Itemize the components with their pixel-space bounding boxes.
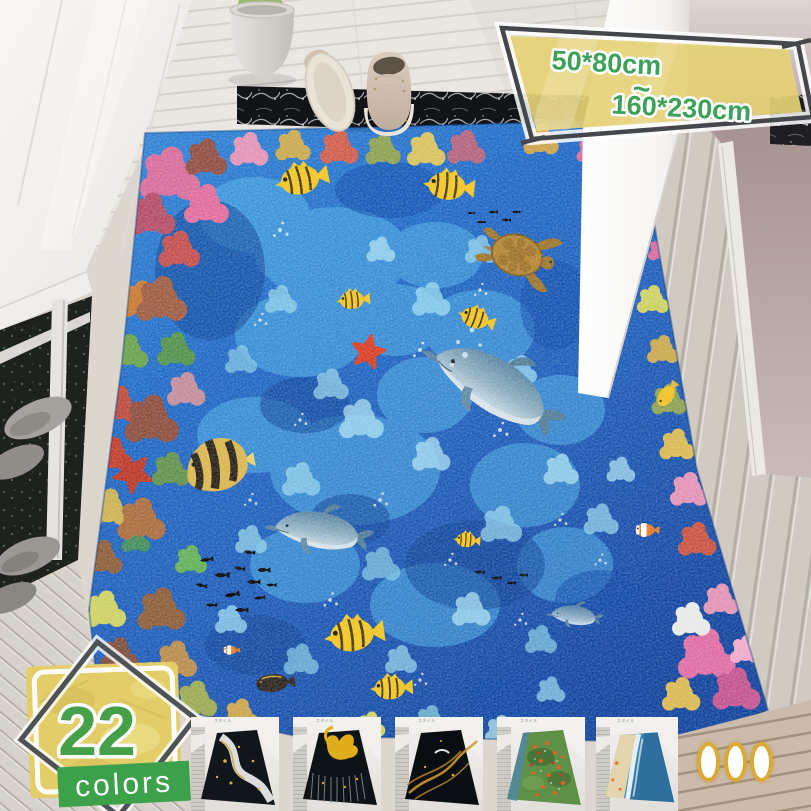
size-banner: 50*80cm ~ 160*230cm [502, 28, 811, 143]
more-colors-dot[interactable] [750, 742, 773, 782]
thumbnail-golden-road-deer-rug[interactable]: スタイル [191, 717, 279, 811]
thumb-scene [191, 717, 279, 811]
more-colors-dot[interactable] [724, 742, 747, 782]
hallway-photo: 50*80cm ~ 160*230cm 22 colors [0, 0, 811, 811]
thumbnail-koi-pond-rug[interactable]: スタイル [497, 717, 585, 811]
thumb-watermark: スタイル [617, 718, 635, 724]
colors-label: colors [74, 765, 174, 803]
thumb-scene [395, 717, 483, 811]
product-listing-image: 50*80cm ~ 160*230cm 22 colors スタイル [0, 0, 811, 811]
more-colors-dot[interactable] [697, 742, 720, 782]
thumbnail-beach-wave-rug[interactable]: スタイル [596, 717, 678, 811]
thumb-watermark: スタイル [214, 718, 232, 724]
thumb-scene [596, 717, 678, 811]
thumbnail-golden-wave-lines-rug[interactable]: スタイル [395, 717, 483, 811]
thumb-scene [497, 717, 585, 811]
thumb-watermark: スタイル [316, 718, 334, 724]
color-count: 22 [58, 692, 136, 770]
thumbnail-golden-swan-rug[interactable]: スタイル [293, 717, 381, 811]
thumb-watermark: スタイル [418, 718, 436, 724]
thumb-scene [293, 717, 381, 811]
color-count-badge: 22 colors [21, 642, 195, 811]
thumb-watermark: スタイル [520, 718, 538, 724]
